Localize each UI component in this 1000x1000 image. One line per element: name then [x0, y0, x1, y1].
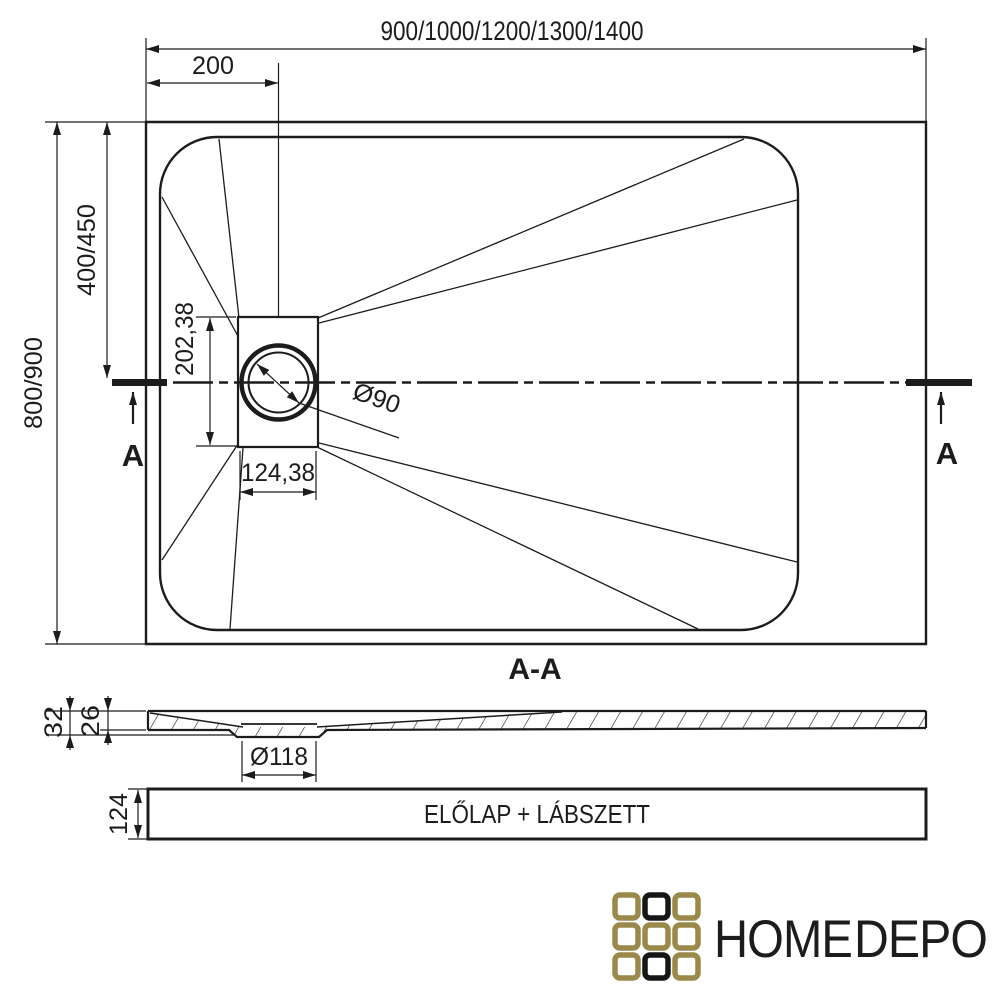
- logo-grid-cell: [645, 955, 668, 978]
- logo-grid-cell: [615, 955, 638, 978]
- dim-text-124-38: 124,38: [241, 459, 315, 487]
- section-label-left: A: [122, 438, 144, 473]
- dim-text-flange: Ø118: [250, 743, 308, 771]
- dim-text-width: 900/1000/1200/1300/1400: [381, 16, 644, 46]
- dim-text-32: 32: [40, 706, 68, 738]
- dim-text-26: 26: [77, 705, 105, 737]
- section-label-right: A: [936, 436, 958, 471]
- logo-grid-cell: [675, 955, 698, 978]
- logo-grid-cell: [675, 925, 698, 948]
- dim-text-depth: 800/900: [20, 337, 48, 429]
- logo-grid-icon: [615, 895, 698, 978]
- shower-tray-drawing: A A 900/1000/1200/1300/1400 200 400/450 …: [0, 0, 1000, 1000]
- front-panel-label: ELŐLAP + LÁBSZETT: [424, 799, 650, 829]
- logo-grid-cell: [615, 925, 638, 948]
- homedepo-logo: HOME DEPO: [615, 895, 987, 978]
- dim-text-400-450: 400/450: [73, 204, 101, 296]
- logo-text-depo: DEPO: [854, 910, 987, 969]
- logo-grid-cell: [675, 895, 698, 918]
- logo-grid-cell: [645, 895, 668, 918]
- section-view: [46, 696, 926, 782]
- technical-drawing-page: A A 900/1000/1200/1300/1400 200 400/450 …: [0, 0, 1000, 1000]
- section-title: A-A: [508, 653, 561, 686]
- dim-text-panel-height: 124: [105, 793, 133, 835]
- dim-text-200: 200: [192, 52, 234, 80]
- logo-grid-cell: [645, 925, 668, 948]
- plan-view: [112, 63, 972, 644]
- dim-text-drain-diameter: Ø90: [349, 377, 404, 419]
- logo-grid-cell: [615, 895, 638, 918]
- dim-text-202: 202,38: [171, 302, 199, 376]
- logo-text-home: HOME: [714, 910, 852, 969]
